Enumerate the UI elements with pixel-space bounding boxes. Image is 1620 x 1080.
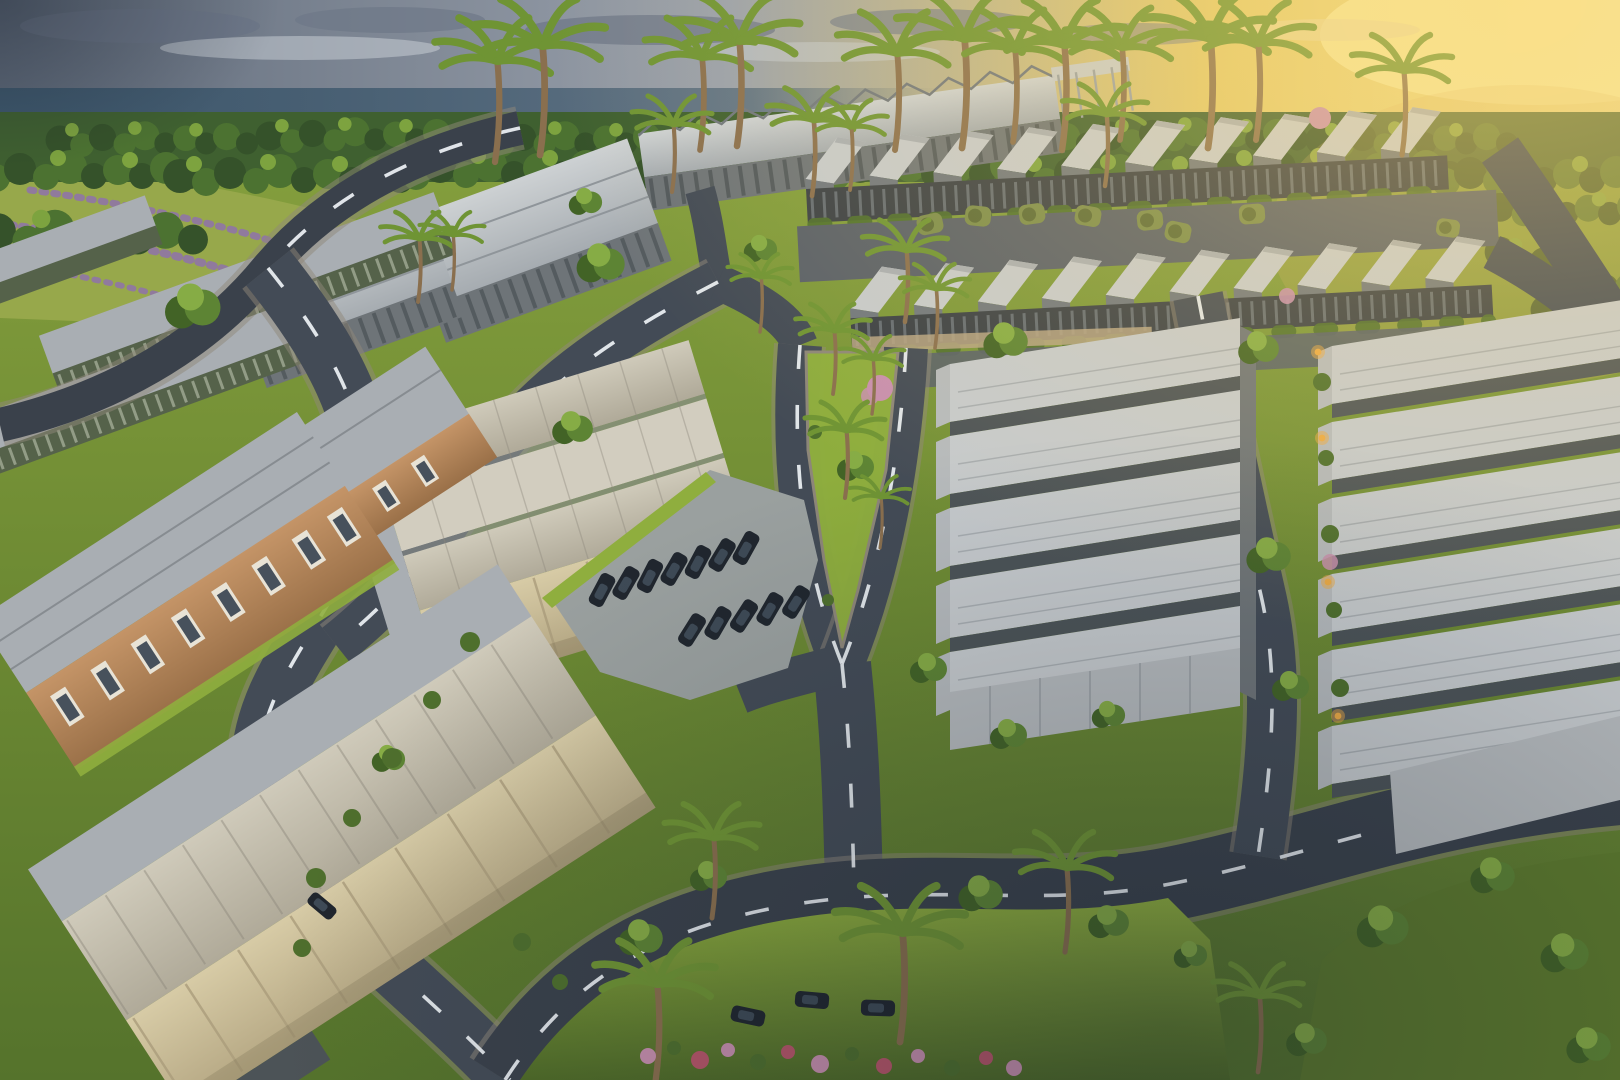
corner-vignette <box>0 0 700 420</box>
aerial-campus-scene <box>0 0 1620 1080</box>
